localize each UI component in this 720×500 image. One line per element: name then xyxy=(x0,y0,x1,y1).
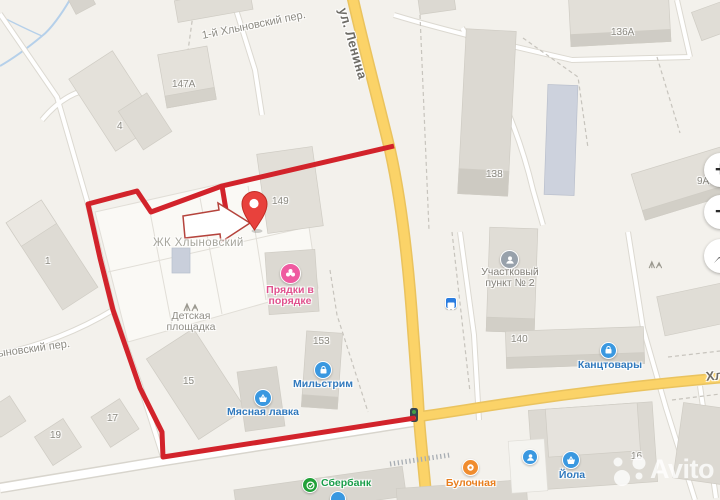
building-number: 15 xyxy=(183,376,194,387)
area-label-jk-khlynovsky: ЖК Хлыновский xyxy=(153,237,244,249)
map-canvas[interactable]: ул. Ленина 1-й Хлыновский пер. ыновский … xyxy=(0,0,720,500)
poi-label-sberbank[interactable]: Сбербанк xyxy=(321,478,371,489)
building-number: 16 xyxy=(631,451,642,462)
beauty-salon-icon[interactable] xyxy=(280,263,301,284)
poi-label-milstrim[interactable]: Мильстрим xyxy=(288,379,358,390)
building-number: 147А xyxy=(172,79,195,90)
stationery-shop-icon[interactable] xyxy=(600,342,617,359)
poi-label-kanctovary[interactable]: Канцтовары xyxy=(575,360,645,371)
bus-stop-icon[interactable] xyxy=(445,297,457,309)
building-number: 19 xyxy=(50,430,61,441)
building-number: 1 xyxy=(45,256,51,267)
building-number: 4 xyxy=(117,121,123,132)
poi-label-playground: Детскаяплощадка xyxy=(156,311,226,334)
building-number: 153 xyxy=(313,336,330,347)
building-number: 17 xyxy=(107,413,118,424)
building-number: 149 xyxy=(272,196,289,207)
poi-label-police-point[interactable]: Участковыйпункт № 2 xyxy=(472,267,548,290)
building-number: 136А xyxy=(611,27,634,38)
poi-label-bulochnaya[interactable]: Булочная xyxy=(442,478,500,489)
building-number: 140 xyxy=(511,334,528,345)
shop-icon-milstrim[interactable] xyxy=(314,361,332,379)
bakery-icon[interactable] xyxy=(462,459,479,476)
street-label-right-clipped: Хл xyxy=(705,367,720,384)
zoom-out-label: − xyxy=(715,200,720,224)
poi-label-myasnaya[interactable]: Мясная лавка xyxy=(226,407,300,418)
location-arrow-icon xyxy=(712,247,720,265)
building-number: 138 xyxy=(486,169,503,180)
zoom-in-label: + xyxy=(715,158,720,182)
poi-label-yola[interactable]: Йола xyxy=(552,470,592,481)
poi-label-pryadki[interactable]: Прядки впорядке xyxy=(252,285,328,308)
shop-icon[interactable] xyxy=(330,491,346,500)
sberbank-icon[interactable] xyxy=(302,477,318,493)
playground-icon xyxy=(648,256,662,274)
shop-icon-yola[interactable] xyxy=(562,451,580,469)
shop-icon[interactable] xyxy=(522,449,538,465)
butcher-shop-icon[interactable] xyxy=(254,389,272,407)
